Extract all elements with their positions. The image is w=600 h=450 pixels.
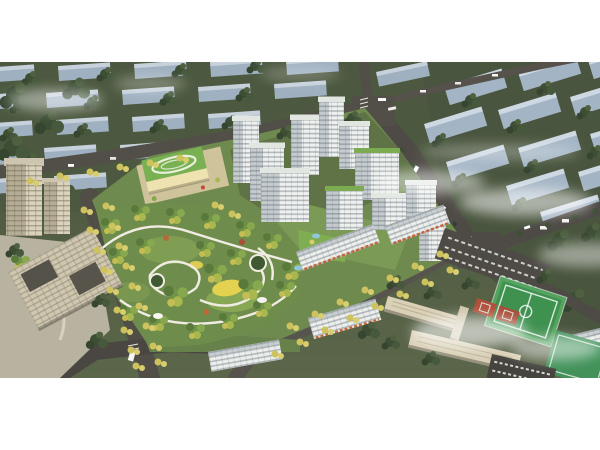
circular-plaza xyxy=(150,274,164,288)
render-svg xyxy=(0,62,600,378)
office-tower xyxy=(42,178,70,234)
shade-canopy xyxy=(257,297,267,303)
bus-shelter xyxy=(562,219,569,223)
bus xyxy=(378,98,386,101)
office-tower xyxy=(4,158,44,236)
aerial-render xyxy=(0,62,600,378)
shade-canopy xyxy=(153,313,163,319)
pond xyxy=(294,266,302,271)
page xyxy=(0,0,600,450)
circular-plaza xyxy=(250,255,266,271)
